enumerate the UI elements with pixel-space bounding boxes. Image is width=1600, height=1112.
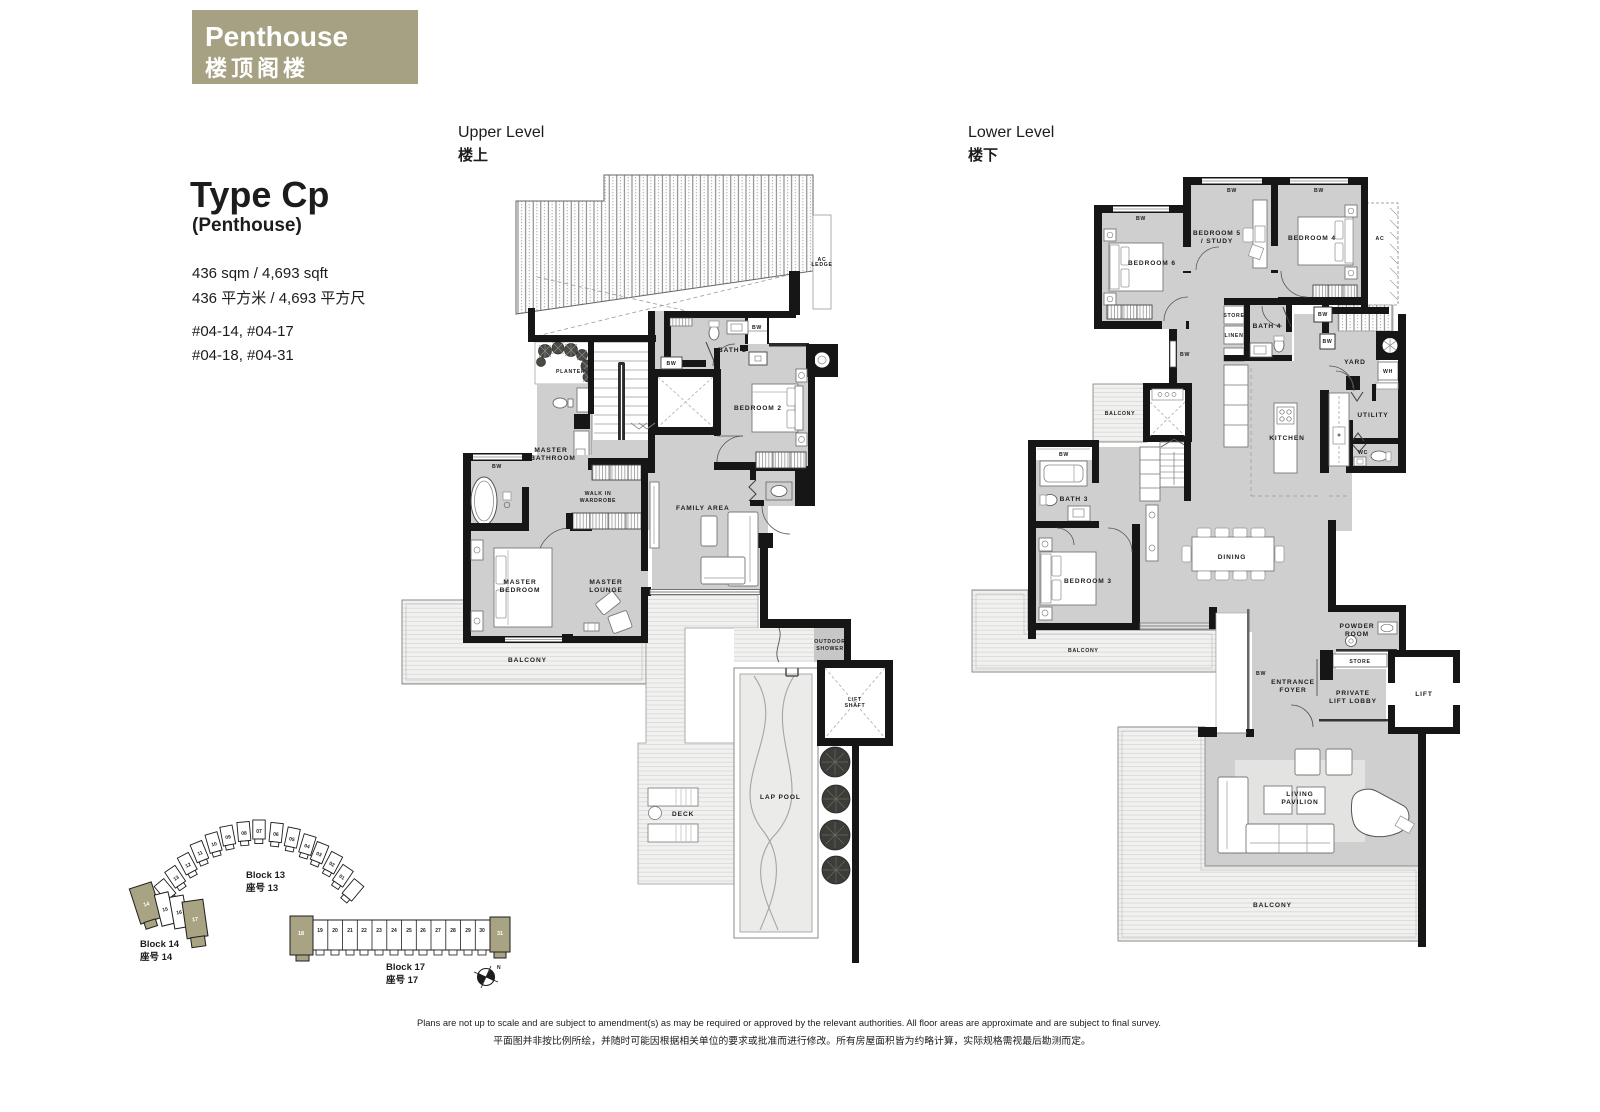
svg-text:WARDROBE: WARDROBE (580, 498, 616, 504)
svg-text:LIFT LOBBY: LIFT LOBBY (1329, 698, 1377, 705)
svg-text:25: 25 (406, 928, 412, 934)
svg-text:24: 24 (391, 928, 397, 934)
svg-text:BATHROOM: BATHROOM (530, 455, 576, 462)
svg-text:26: 26 (420, 928, 426, 934)
svg-text:07: 07 (256, 829, 262, 835)
svg-text:STORE: STORE (1223, 313, 1244, 319)
svg-text:WALK IN: WALK IN (585, 491, 612, 497)
svg-text:楼下: 楼下 (968, 146, 998, 164)
svg-text:Type Cp: Type Cp (190, 174, 329, 215)
svg-text:28: 28 (450, 928, 456, 934)
svg-text:LIFT: LIFT (1415, 691, 1433, 698)
svg-text:BALCONY: BALCONY (1105, 411, 1136, 417)
svg-text:/ STUDY: / STUDY (1201, 238, 1233, 245)
svg-text:BW: BW (492, 464, 502, 470)
svg-text:31: 31 (497, 931, 503, 937)
svg-text:21: 21 (347, 928, 353, 934)
svg-text:楼顶阁楼: 楼顶阁楼 (205, 56, 309, 81)
svg-text:BW: BW (1059, 452, 1069, 458)
svg-text:Block 17: Block 17 (386, 962, 425, 973)
svg-text:PAVILION: PAVILION (1281, 799, 1318, 806)
svg-text:MASTER: MASTER (534, 447, 567, 454)
svg-text:BEDROOM 5: BEDROOM 5 (1193, 230, 1241, 237)
svg-text:LOUNGE: LOUNGE (589, 587, 623, 594)
svg-text:POWDER: POWDER (1339, 623, 1374, 630)
svg-text:FOYER: FOYER (1279, 687, 1306, 694)
svg-text:SHOWER: SHOWER (816, 646, 844, 652)
svg-text:ENTRANCE: ENTRANCE (1271, 679, 1315, 686)
svg-text:19: 19 (317, 928, 323, 934)
svg-text:06: 06 (273, 832, 279, 839)
svg-text:楼上: 楼上 (458, 146, 488, 164)
svg-text:BATH 4: BATH 4 (1253, 323, 1282, 330)
svg-text:BALCONY: BALCONY (1068, 648, 1099, 654)
svg-text:BEDROOM 2: BEDROOM 2 (734, 405, 782, 412)
svg-text:436 平方米 / 4,693 平方尺: 436 平方米 / 4,693 平方尺 (192, 290, 365, 307)
svg-text:BW: BW (1136, 216, 1146, 222)
svg-text:BW: BW (1314, 188, 1324, 194)
svg-text:436 sqm / 4,693 sqft: 436 sqm / 4,693 sqft (192, 265, 329, 282)
svg-text:PLANTER: PLANTER (556, 369, 585, 375)
svg-text:LEDGE: LEDGE (811, 262, 832, 268)
svg-text:BW: BW (666, 361, 676, 367)
svg-text:#04-14, #04-17: #04-14, #04-17 (192, 323, 294, 340)
svg-text:BALCONY: BALCONY (508, 657, 547, 664)
svg-text:AC: AC (1376, 236, 1385, 242)
svg-text:BEDROOM 4: BEDROOM 4 (1288, 235, 1336, 242)
svg-text:Block 13: Block 13 (246, 870, 285, 881)
svg-text:BW: BW (1180, 352, 1190, 358)
svg-text:PRIVATE: PRIVATE (1336, 690, 1370, 697)
svg-text:STORE: STORE (1349, 659, 1370, 665)
svg-text:BW: BW (1322, 339, 1332, 345)
svg-text:23: 23 (376, 928, 382, 934)
svg-text:座号 17: 座号 17 (385, 974, 418, 986)
svg-text:Plans are not up to scale and: Plans are not up to scale and are subjec… (417, 1018, 1161, 1028)
svg-text:BW: BW (1256, 671, 1266, 677)
svg-text:KITCHEN: KITCHEN (1269, 435, 1305, 442)
svg-text:MASTER: MASTER (589, 579, 622, 586)
svg-text:17: 17 (192, 917, 199, 924)
svg-text:BW: BW (1227, 188, 1237, 194)
svg-text:FAMILY AREA: FAMILY AREA (676, 505, 730, 512)
svg-text:LAP POOL: LAP POOL (760, 794, 801, 801)
svg-text:MASTER: MASTER (503, 579, 536, 586)
svg-text:UTILITY: UTILITY (1357, 412, 1388, 419)
svg-text:20: 20 (332, 928, 338, 934)
svg-text:Lower Level: Lower Level (968, 124, 1054, 141)
svg-text:平面图并非按比例所绘，并随时可能因根据相关单位的要求或批准而: 平面图并非按比例所绘，并随时可能因根据相关单位的要求或批准而进行修改。所有房屋面… (493, 1034, 1091, 1047)
svg-text:BATH 2: BATH 2 (718, 347, 747, 354)
svg-text:#04-18, #04-31: #04-18, #04-31 (192, 347, 294, 364)
svg-text:08: 08 (241, 831, 247, 837)
svg-text:Upper Level: Upper Level (458, 124, 544, 141)
svg-text:30: 30 (479, 928, 485, 934)
svg-text:LIVING: LIVING (1286, 791, 1313, 798)
svg-text:(Penthouse): (Penthouse) (192, 215, 302, 236)
svg-text:座号 13: 座号 13 (245, 882, 278, 894)
svg-text:LINEN: LINEN (1224, 333, 1243, 339)
svg-text:DECK: DECK (672, 811, 694, 818)
svg-text:座号 14: 座号 14 (139, 951, 173, 963)
svg-text:WH: WH (1383, 369, 1393, 375)
svg-text:29: 29 (465, 928, 471, 934)
svg-text:BW: BW (752, 325, 762, 331)
svg-text:DINING: DINING (1218, 554, 1246, 561)
svg-text:Penthouse: Penthouse (205, 21, 348, 52)
svg-text:SHAFT: SHAFT (845, 703, 866, 709)
svg-text:BEDROOM 6: BEDROOM 6 (1128, 260, 1176, 267)
svg-text:N: N (497, 965, 501, 971)
svg-text:22: 22 (361, 928, 367, 934)
svg-text:BW: BW (1318, 312, 1328, 318)
svg-text:BALCONY: BALCONY (1253, 902, 1292, 909)
svg-text:YARD: YARD (1344, 359, 1366, 366)
svg-text:27: 27 (435, 928, 441, 934)
svg-text:ROOM: ROOM (1345, 631, 1369, 638)
svg-text:OUTDOOR: OUTDOOR (814, 639, 845, 645)
svg-text:BATH 3: BATH 3 (1060, 496, 1089, 503)
svg-text:WC: WC (1358, 450, 1368, 456)
svg-text:BEDROOM: BEDROOM (500, 587, 541, 594)
svg-text:Block 14: Block 14 (140, 939, 180, 950)
svg-text:18: 18 (298, 931, 304, 937)
svg-text:BEDROOM 3: BEDROOM 3 (1064, 578, 1112, 585)
